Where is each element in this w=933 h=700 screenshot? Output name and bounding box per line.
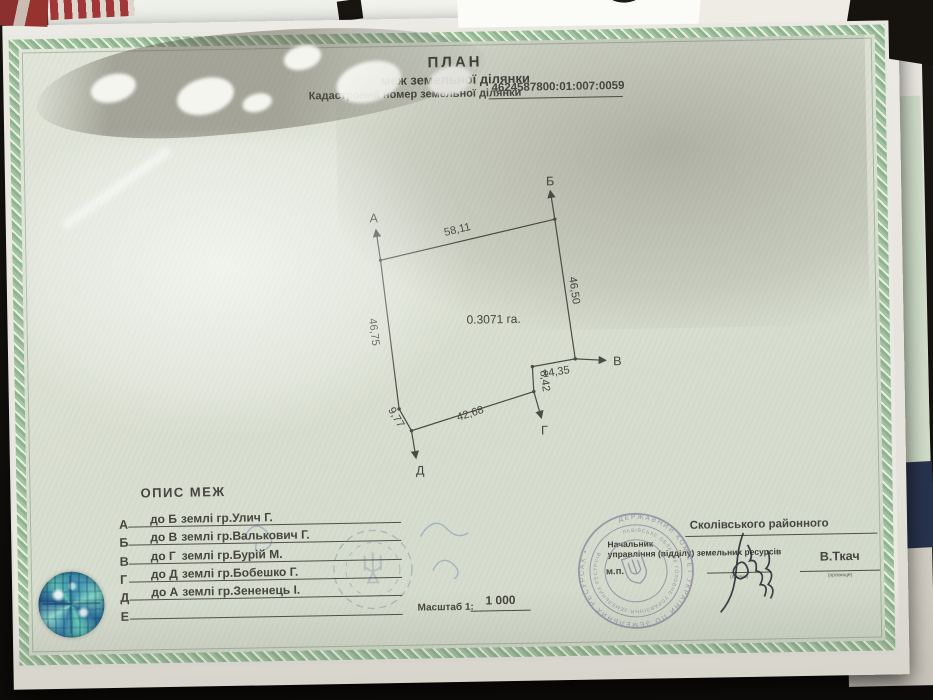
boundary-letter: Е bbox=[121, 610, 130, 624]
dim-bv: 46,50 bbox=[566, 276, 582, 305]
boundary-to: до Д bbox=[151, 567, 178, 581]
point-label-v: В bbox=[613, 354, 622, 368]
point-arrow-v bbox=[575, 358, 605, 361]
boundary-row: Б до В землі гр.Валькович Г. bbox=[119, 525, 401, 546]
point-label-b: Б bbox=[546, 174, 554, 188]
land-plan-document: ПЛАН меж земельної ділянки Кадастровий н… bbox=[5, 20, 900, 669]
boundary-to: до А bbox=[151, 585, 178, 599]
boundary-neighbor: землі гр.Бурій М. bbox=[182, 547, 283, 563]
dim-dd: 9,77 bbox=[385, 405, 406, 430]
boundary-to: до Г bbox=[151, 549, 176, 563]
photo-scene: ПЛАН меж земельної ділянки Кадастровий н… bbox=[0, 0, 933, 700]
dim-da: 46,75 bbox=[366, 318, 381, 347]
handwritten-signature bbox=[681, 516, 793, 628]
boundary-to: до В bbox=[150, 530, 177, 544]
dim-vg2: 8,42 bbox=[537, 370, 552, 393]
stamp-trident-emblem bbox=[622, 553, 650, 586]
dim-gd: 42,68 bbox=[455, 404, 485, 424]
parcel-plan-drawing: А Б В Г Д 58,11 46,50 14,35 8,42 42,68 9… bbox=[296, 140, 642, 496]
boundary-row: Д до А землі гр.Зененець І. bbox=[120, 580, 402, 601]
red-item-top-left bbox=[0, 0, 49, 27]
cadastral-number-value: 4624587800:01:007:0059 bbox=[491, 80, 619, 94]
scale-underline bbox=[471, 610, 531, 612]
area-label: 0.3071 га. bbox=[466, 312, 520, 327]
point-label-a: А bbox=[369, 211, 378, 225]
point-arrow-g bbox=[534, 391, 541, 417]
background-gap-shadow bbox=[337, 0, 364, 22]
boundary-neighbor: землі гр.Бобешко Г. bbox=[182, 565, 299, 581]
boundary-neighbor: землі гр.Зененець І. bbox=[182, 583, 300, 599]
boundary-underline bbox=[130, 614, 403, 620]
point-arrow-b bbox=[550, 191, 554, 219]
scale-value: 1 000 bbox=[472, 593, 528, 608]
scale-label: Масштаб 1: bbox=[417, 602, 473, 614]
boundary-to: до Б bbox=[150, 512, 177, 526]
dark-blob bbox=[602, 0, 648, 4]
boundaries-heading: ОПИС МЕЖ bbox=[140, 484, 225, 500]
cadastral-number-label: Кадастровий номер земельної ділянки bbox=[309, 87, 522, 103]
boundary-neighbor: землі гр.Валькович Г. bbox=[181, 528, 310, 544]
dim-ab: 58,11 bbox=[443, 221, 472, 239]
signer-name: В.Ткач bbox=[802, 549, 878, 564]
point-arrow-a bbox=[376, 230, 381, 260]
signer-name-caption: (прізвище) bbox=[800, 572, 880, 579]
boundary-neighbor: землі гр.Улич Г. bbox=[181, 510, 273, 526]
point-arrow-d bbox=[411, 431, 415, 458]
boundary-row: Е bbox=[120, 599, 402, 620]
point-label-g: Г bbox=[541, 423, 548, 437]
point-label-d: Д bbox=[416, 463, 425, 477]
